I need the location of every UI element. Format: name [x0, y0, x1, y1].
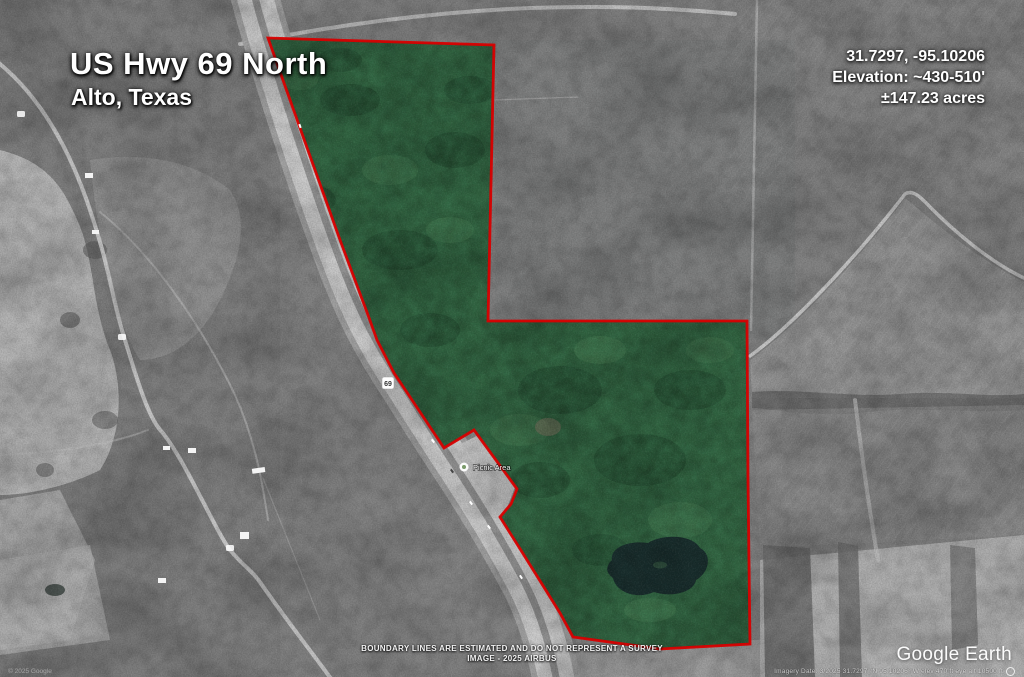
property-info-block: 31.7297, -95.10206 Elevation: ~430-510' … — [832, 46, 985, 109]
disclaimer-line1: BOUNDARY LINES ARE ESTIMATED AND DO NOT … — [361, 644, 663, 654]
highway-shield[interactable]: 69 — [382, 377, 394, 389]
coordinates-label: 31.7297, -95.10206 — [832, 46, 985, 67]
compass-icon — [1006, 667, 1015, 676]
google-earth-map-view[interactable]: 69 Picnic Area US Hwy 69 North Alto, Tex… — [0, 0, 1024, 677]
copyright-notice: © 2025 Google — [8, 668, 52, 675]
map-subtitle: Alto, Texas — [71, 84, 192, 111]
map-title: US Hwy 69 North — [70, 46, 327, 82]
boundary-disclaimer: BOUNDARY LINES ARE ESTIMATED AND DO NOT … — [361, 644, 663, 664]
imagery-status-bar: Imagery Date: 3/2025 31.7297° N 95.10206… — [774, 667, 1015, 676]
highway-shield-number: 69 — [384, 381, 392, 388]
disclaimer-line2: IMAGE - 2025 AIRBUS — [361, 654, 663, 664]
imagery-status-text: Imagery Date: 3/2025 31.7297° N 95.10206… — [774, 668, 1003, 675]
google-earth-logo: Google Earth — [896, 644, 1012, 666]
elevation-label: Elevation: ~430-510' — [832, 67, 985, 88]
poi-label: Picnic Area — [473, 463, 511, 472]
acreage-label: ±147.23 acres — [832, 88, 985, 109]
